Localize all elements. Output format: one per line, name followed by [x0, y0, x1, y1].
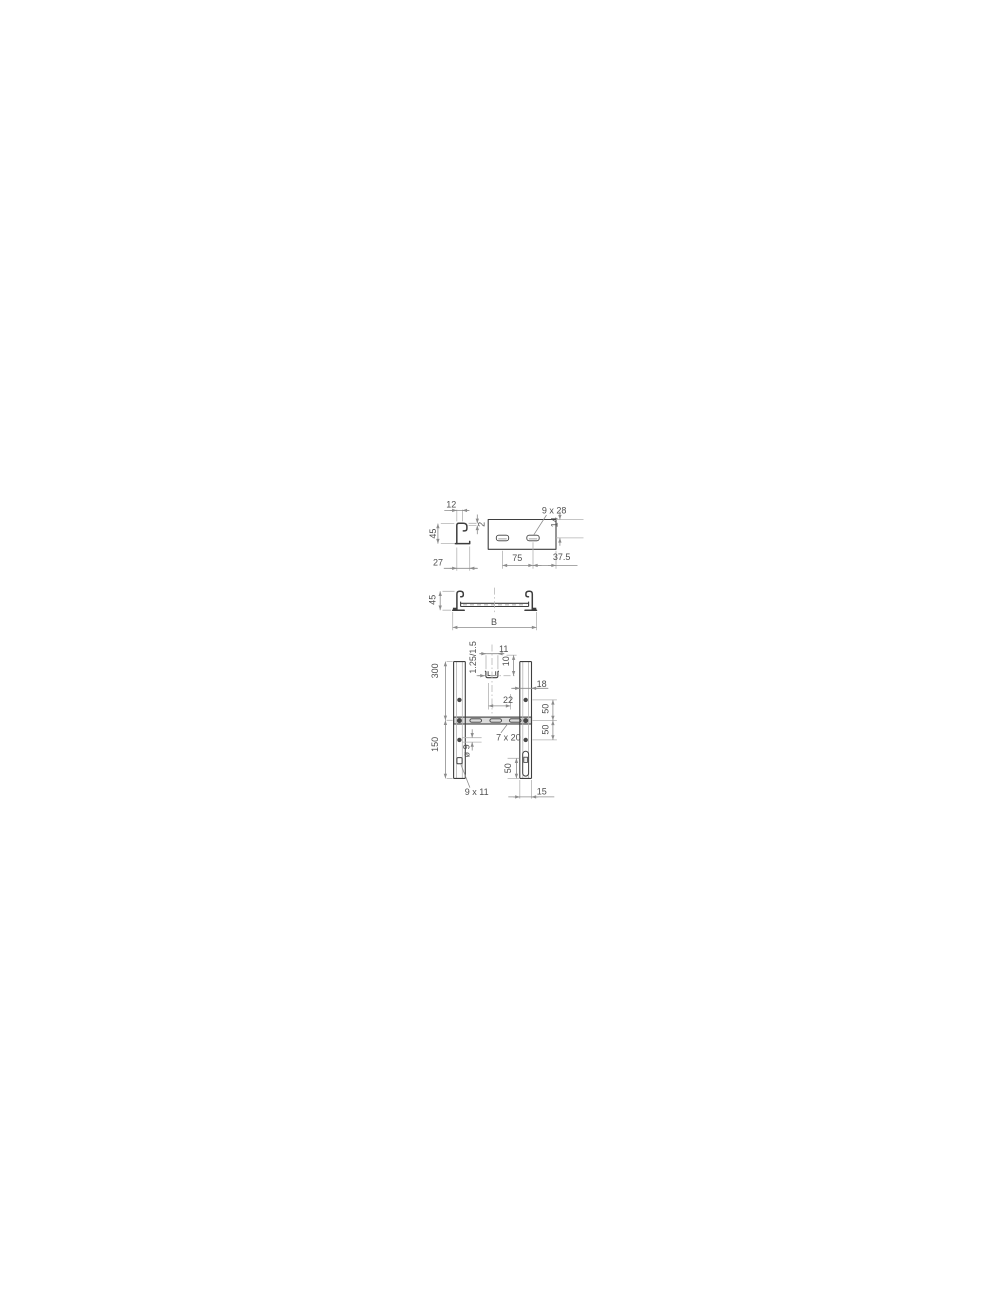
rail-slot-9x11	[457, 758, 462, 764]
dim-slot-top-offset-label: 14	[550, 517, 560, 527]
rail-profile-outline	[457, 523, 467, 543]
section-right-rail	[526, 591, 532, 610]
rung-rivet-right	[523, 718, 528, 723]
dim-slot-spacing-label: 22	[503, 695, 513, 705]
dim-detail-height: 10	[501, 655, 517, 676]
view-rung-face: 9 x 28 14 75 37.5	[488, 505, 583, 568]
dim-rail-flange-label: 18	[537, 679, 547, 689]
dim-hole-offset-lower-label: 50	[540, 725, 550, 735]
dim-rung-pitch-label: 300	[430, 663, 440, 678]
rail-slot-size-label: 9 x 11	[465, 787, 489, 797]
label-material-gauge: 1.25/1.5	[468, 641, 485, 676]
page: 12 45 2 27	[0, 0, 1000, 1300]
rung-slot-left	[496, 535, 508, 541]
dim-rail-flange: 18	[511, 679, 548, 689]
rung-slot-size-label: 7 x 20	[496, 732, 521, 742]
rail-hole	[457, 738, 461, 742]
dim-hole-offset-lower: 50	[540, 720, 553, 740]
rung-rivet-left	[457, 718, 462, 723]
dim-fixing-slot-length: 50	[503, 758, 519, 778]
dim-hole-diameter: ø 9	[462, 729, 482, 757]
dim-thickness: 2	[469, 515, 487, 535]
dim-slot-top-offset: 14	[550, 512, 584, 546]
hole-diameter-label: ø 9	[462, 744, 472, 757]
dim-profile-height: 45	[428, 524, 454, 544]
dim-base-width-label: 27	[433, 558, 443, 568]
dim-fixing-slot-length-label: 50	[503, 763, 513, 773]
label-rung-slot-size: 7 x 20	[496, 724, 521, 742]
rail-fixing-slot	[523, 751, 529, 776]
slot-size-label: 9 x 28	[542, 505, 567, 515]
dim-slot-end-offset: 37.5	[533, 552, 578, 566]
dim-rung-pitch: 300	[430, 662, 453, 721]
rail-hole	[524, 698, 528, 702]
dim-detail-height-label: 10	[501, 656, 511, 666]
dim-slot-pitch-label: 75	[512, 553, 522, 563]
dim-detail-width-label: 11	[499, 644, 508, 654]
dim-hole-offset-upper-label: 50	[540, 704, 550, 714]
rail-hole	[524, 738, 528, 742]
dim-base-width: 27	[433, 547, 478, 571]
view-ladder-section: 45 B	[428, 588, 537, 631]
dim-slot-end-offset-label: 37.5	[553, 552, 571, 562]
view-rail-profile: 12 45 2 27	[428, 499, 486, 571]
section-left-rail	[457, 591, 463, 610]
dim-slot-pitch: 75	[503, 542, 557, 569]
dim-section-width-label: B	[491, 617, 497, 627]
dim-section-width: B	[453, 612, 537, 630]
dim-hole-pitch-label: 150	[430, 737, 440, 752]
rung-body	[488, 520, 556, 550]
dim-rail-depth-label: 15	[537, 787, 547, 797]
rail-hole	[457, 698, 461, 702]
technical-drawing-canvas: 12 45 2 27	[0, 0, 1000, 1300]
rung-slot-right	[527, 535, 539, 541]
dim-hole-pitch: 150	[430, 720, 453, 778]
material-gauge-label: 1.25/1.5	[468, 641, 478, 674]
dim-profile-height-label: 45	[428, 529, 438, 539]
dim-rail-depth: 15	[508, 780, 554, 799]
dim-lip-width: 12	[444, 499, 469, 521]
dim-section-height-label: 45	[428, 595, 438, 605]
dim-section-height: 45	[428, 591, 455, 610]
dim-thickness-label: 2	[476, 522, 486, 527]
dim-lip-width-label: 12	[446, 499, 456, 509]
view-ladder-plan: 11 10 1.25/1.5 18 22 300	[430, 641, 557, 798]
